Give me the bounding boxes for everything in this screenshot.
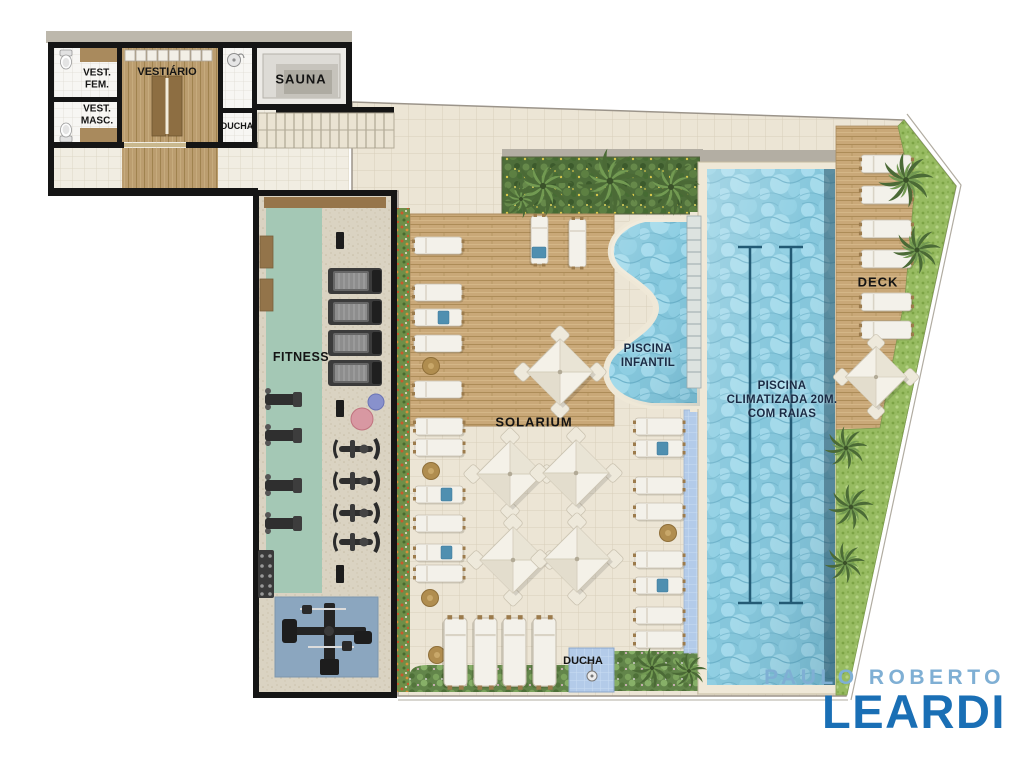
lounger <box>633 607 686 626</box>
pool-steps <box>687 216 701 388</box>
towel <box>657 442 668 455</box>
lounger <box>413 515 466 534</box>
corridor-wood-path <box>122 148 218 188</box>
lounger <box>531 615 556 690</box>
side-table <box>423 358 440 375</box>
label-line: PISCINA <box>727 379 838 393</box>
room-label-piscina-climatizada: PISCINA CLIMATIZADA 20M. COM RAIAS <box>727 379 838 421</box>
room-label-vestiario: VESTIÁRIO <box>137 66 196 78</box>
fitness-room <box>256 193 394 695</box>
room-label-deck: DECK <box>858 275 899 290</box>
door-opening <box>124 143 186 147</box>
lounger <box>859 293 914 312</box>
main-pool <box>698 150 843 694</box>
exercise-ball-blue <box>368 394 384 410</box>
toilet-icon <box>60 123 72 142</box>
lounger <box>633 418 686 437</box>
label-line: VEST. <box>81 104 113 116</box>
lounger <box>859 220 914 239</box>
vest-fem-bench <box>80 48 117 62</box>
room-label-vest-masc: VEST. MASC. <box>81 104 113 127</box>
label-line: CLIMATIZADA 20M. <box>727 393 838 407</box>
lounger <box>412 284 465 303</box>
room-label-sauna: SAUNA <box>275 72 326 87</box>
side-table <box>423 463 440 480</box>
room-label-fitness: FITNESS <box>273 350 329 364</box>
label-line: VEST. <box>83 68 111 80</box>
lounger <box>501 615 526 690</box>
roof-band <box>46 31 352 43</box>
lounger <box>633 503 686 522</box>
bench-divider <box>166 78 169 134</box>
gym-accessory <box>336 232 344 249</box>
lounger <box>413 439 466 458</box>
treadmill <box>328 268 382 294</box>
lounger <box>472 615 497 690</box>
treadmill <box>328 360 382 386</box>
lounger <box>413 418 466 437</box>
room-label-piscina-infantil: PISCINA INFANTIL <box>621 342 675 370</box>
label-line: COM RAIAS <box>727 407 838 421</box>
lounger <box>413 544 466 563</box>
lounger <box>859 321 914 340</box>
dumbbell-rack <box>258 550 274 598</box>
lounger <box>568 217 587 270</box>
lounger <box>530 214 549 267</box>
side-table <box>660 525 677 542</box>
lounger <box>413 486 466 505</box>
label-line: FEM. <box>83 79 111 91</box>
room-label-ducha-top: DUCHA <box>221 121 254 131</box>
floor-plan: VEST. FEM. VEST. MASC. VESTIÁRIO DUCHA S… <box>0 0 1024 768</box>
towel <box>532 247 546 258</box>
lounger <box>633 631 686 650</box>
towel <box>441 488 452 501</box>
room-label-vest-fem: VEST. FEM. <box>83 68 111 91</box>
lounger <box>412 381 465 400</box>
treadmill <box>328 330 382 356</box>
label-line: INFANTIL <box>621 356 675 370</box>
side-table <box>422 590 439 607</box>
room-label-ducha-bottom: DUCHA <box>563 655 603 667</box>
floor-plan-graphic <box>0 0 1024 768</box>
towel <box>441 546 452 559</box>
room-label-solarium: SOLARIUM <box>495 415 572 430</box>
lounger <box>412 237 465 256</box>
pool-shine <box>707 169 835 685</box>
treadmill <box>328 299 382 325</box>
logo-name-text: LEARDI <box>764 690 1006 735</box>
towel <box>438 311 449 324</box>
planter-edge <box>502 149 703 157</box>
stairs <box>258 113 394 148</box>
gym-accessory <box>336 565 344 583</box>
vest-masc-bench <box>80 128 117 142</box>
lounger <box>412 335 465 354</box>
lounger <box>633 551 686 570</box>
label-line: PISCINA <box>621 342 675 356</box>
gym-accessory <box>336 400 344 417</box>
fitness-shelf <box>264 197 386 208</box>
leardi-logo: PAULO ROBERTO LEARDI <box>764 666 1006 735</box>
label-line: MASC. <box>81 115 113 127</box>
wood-bench <box>260 279 273 311</box>
towel <box>657 579 668 592</box>
lounger <box>413 565 466 584</box>
lounger <box>442 615 467 690</box>
lounger <box>633 477 686 496</box>
exercise-ball-pink <box>351 408 373 430</box>
vestiario-bench <box>152 76 166 136</box>
vestiario-bench <box>168 76 182 136</box>
flower-bed <box>396 208 410 692</box>
toilet-icon <box>60 50 72 69</box>
wood-bench <box>260 236 273 268</box>
